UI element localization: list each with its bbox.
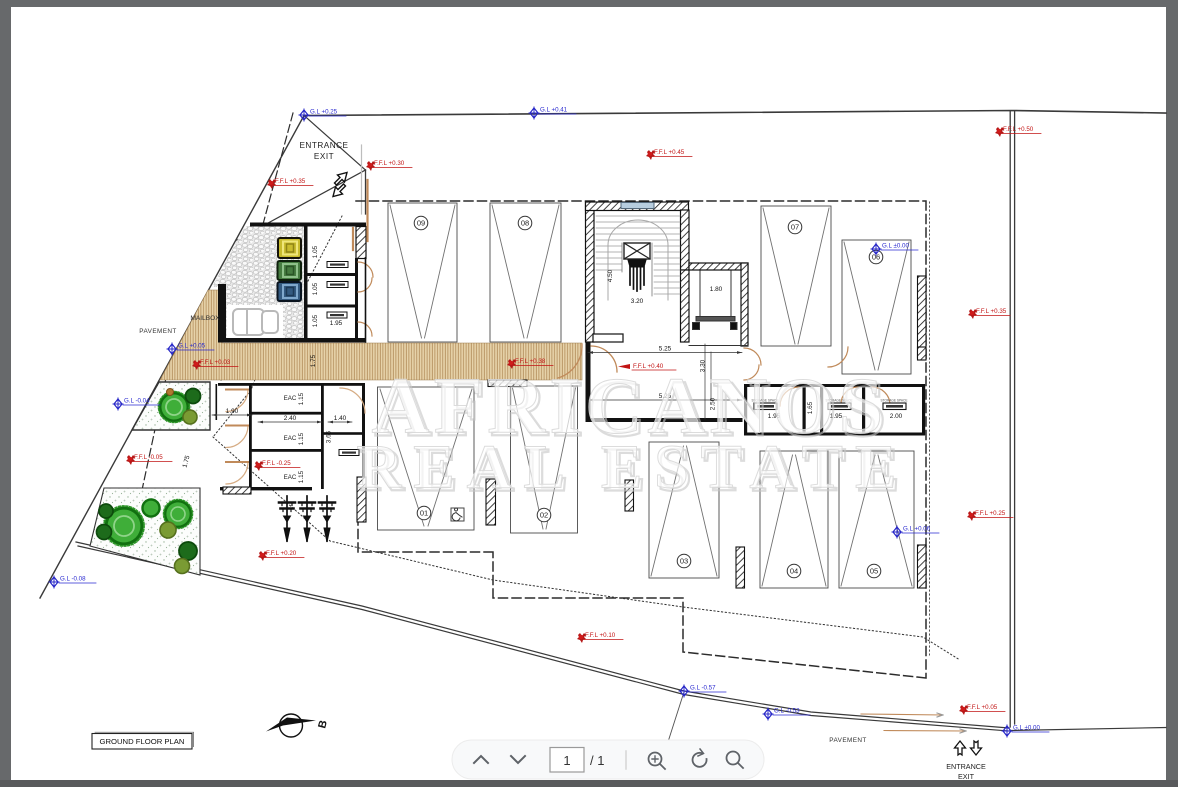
svg-text:EAC: EAC <box>284 474 297 481</box>
svg-text:1.15: 1.15 <box>298 432 305 445</box>
svg-text:F.F.L +0.05: F.F.L +0.05 <box>967 704 998 711</box>
svg-text:1.15: 1.15 <box>298 392 305 405</box>
svg-text:F.F.L +0.20: F.F.L +0.20 <box>266 550 297 557</box>
svg-text:F.F.L +0.25: F.F.L +0.25 <box>975 510 1006 517</box>
svg-text:EAC: EAC <box>284 435 297 442</box>
svg-text:ENTRANCE: ENTRANCE <box>946 762 986 771</box>
svg-text:G.L -0.08: G.L -0.08 <box>60 576 86 583</box>
svg-text:EXIT: EXIT <box>958 772 975 781</box>
svg-text:F.F.L +0.35: F.F.L +0.35 <box>976 308 1007 315</box>
svg-text:MAILBOX: MAILBOX <box>190 315 220 322</box>
svg-text:F.F.L +0.50: F.F.L +0.50 <box>1003 126 1034 133</box>
svg-text:EAC: EAC <box>284 395 297 402</box>
svg-text:PAVEMENT: PAVEMENT <box>139 328 176 335</box>
svg-text:2.40: 2.40 <box>284 415 297 422</box>
svg-text:G.L +0.25: G.L +0.25 <box>310 109 338 116</box>
svg-text:1.95: 1.95 <box>330 320 343 327</box>
svg-text:G.L -0.57: G.L -0.57 <box>690 685 716 692</box>
svg-text:2.00: 2.00 <box>890 413 903 420</box>
svg-text:3.65: 3.65 <box>326 430 333 443</box>
svg-text:1.80: 1.80 <box>710 286 723 293</box>
svg-text:09: 09 <box>417 219 425 228</box>
svg-text:3.20: 3.20 <box>631 298 644 305</box>
svg-text:4.50: 4.50 <box>607 269 614 282</box>
svg-text:F.F.L +0.35: F.F.L +0.35 <box>275 178 306 185</box>
svg-text:G.L +0.05: G.L +0.05 <box>178 343 206 350</box>
svg-text:F.F.L +0.10: F.F.L +0.10 <box>585 632 616 639</box>
svg-text:PAVEMENT: PAVEMENT <box>829 737 866 744</box>
svg-text:03: 03 <box>680 557 688 566</box>
svg-text:ENTRANCE: ENTRANCE <box>299 141 348 150</box>
svg-text:01: 01 <box>420 509 428 518</box>
svg-text:04: 04 <box>790 567 798 576</box>
svg-text:1.15: 1.15 <box>298 470 305 483</box>
svg-text:1.75: 1.75 <box>310 354 317 367</box>
svg-text:1.90: 1.90 <box>226 408 239 415</box>
svg-text:1: 1 <box>563 753 570 768</box>
svg-text:1.05: 1.05 <box>312 245 319 258</box>
svg-text:G.L -0.53: G.L -0.53 <box>774 708 800 715</box>
svg-text:G.L +0.41: G.L +0.41 <box>540 107 568 114</box>
svg-text:G.L ±0.00: G.L ±0.00 <box>882 243 909 250</box>
svg-text:F.F.L +0.30: F.F.L +0.30 <box>374 160 405 167</box>
svg-text:REAL ESTATE: REAL ESTATE <box>357 434 909 502</box>
svg-text:1.40: 1.40 <box>334 415 347 422</box>
svg-text:GROUND FLOOR PLAN: GROUND FLOOR PLAN <box>99 737 184 746</box>
svg-text:/ 1: / 1 <box>590 753 604 768</box>
svg-text:G.L ±0.00: G.L ±0.00 <box>1013 725 1040 732</box>
svg-text:05: 05 <box>870 567 878 576</box>
svg-text:08: 08 <box>521 219 529 228</box>
svg-text:F.F.L -0.25: F.F.L -0.25 <box>262 460 291 467</box>
svg-text:1.05: 1.05 <box>312 282 319 295</box>
svg-text:G.L +0.06: G.L +0.06 <box>903 526 931 533</box>
svg-text:G.L -0.04: G.L -0.04 <box>124 398 150 405</box>
svg-text:F.F.L +0.03: F.F.L +0.03 <box>200 359 231 366</box>
svg-text:F.F.L -0.05: F.F.L -0.05 <box>134 454 163 461</box>
svg-text:02: 02 <box>540 511 548 520</box>
svg-text:07: 07 <box>791 223 799 232</box>
svg-text:EXIT: EXIT <box>314 152 334 161</box>
svg-text:1.05: 1.05 <box>312 314 319 327</box>
svg-text:F.F.L +0.45: F.F.L +0.45 <box>654 149 685 156</box>
svg-text:5.25: 5.25 <box>659 346 672 353</box>
